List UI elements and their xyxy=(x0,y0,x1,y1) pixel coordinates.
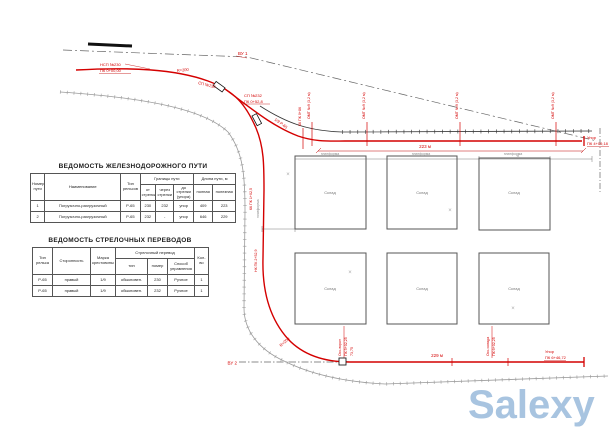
track-register-title: ВЕДОМОСТЬ ЖЕЛЕЗНОДОРОЖНОГО ПУТИ xyxy=(30,163,236,170)
branch-track-path xyxy=(225,89,582,141)
omt-marker-label: ОМТ №9 (3,2 м) xyxy=(455,92,459,119)
warehouse-label: Склад xyxy=(508,190,520,195)
switch-230-label: СП №230 xyxy=(198,80,217,89)
curve-kk0-label: КК ПК 0+86 xyxy=(298,107,302,126)
table-row: Р-65 правый 1/9 обыкновен. 232 Ручное 1 xyxy=(33,286,209,297)
cross-mark: × xyxy=(448,208,452,214)
omt-marker-label: ОМТ №9 (3,2 м) xyxy=(362,92,366,119)
warehouse-label: Склад xyxy=(324,286,336,291)
cross-mark: × xyxy=(516,154,520,160)
col-bounds: Границы пути xyxy=(140,174,193,185)
gate-symbol xyxy=(339,358,346,365)
buffer-top-label-line2: ПК 4+09,18 xyxy=(587,141,609,146)
gate2-label-line1: Ось склада xyxy=(486,337,490,356)
track-register: ВЕДОМОСТЬ ЖЕЛЕЗНОДОРОЖНОГО ПУТИ Номер пу… xyxy=(30,163,236,223)
cell-num: 1 xyxy=(31,201,45,212)
warehouse-label: Склад xyxy=(416,286,428,291)
warehouse-label: Склад xyxy=(508,286,520,291)
curve-radius-top: R=200 xyxy=(177,67,190,73)
pk-ticks xyxy=(303,122,584,367)
start-label-line2: ПК 0+00,00 xyxy=(100,68,122,73)
cell-rail: Р-65 xyxy=(33,286,53,297)
omt-marker-label: ОМТ №9 (3,2 м) xyxy=(307,92,311,119)
col-qty: Кол-во xyxy=(195,248,209,275)
buffer-bottom-label-line1: Упор xyxy=(545,349,555,354)
col-turnout-type: тип xyxy=(116,259,148,275)
omt-marker-label: ОМТ №9 (3,2 м) xyxy=(551,92,555,119)
cell-num: 2 xyxy=(31,212,45,223)
col-frog-mark: Марка крестовины xyxy=(91,248,116,275)
cell-from: 230 xyxy=(140,201,155,212)
platform-label: платформа xyxy=(321,152,340,156)
cell-type: обыкновен. xyxy=(116,286,148,297)
switch-register: ВЕДОМОСТЬ СТРЕЛОЧНЫХ ПЕРЕВОДОВ Тип рельс… xyxy=(32,237,208,297)
cross-mark: × xyxy=(511,306,515,312)
cell-rail: Р-65 xyxy=(33,275,53,286)
gate1-label-line3: 73,75 xyxy=(350,347,354,356)
cell-full: 646 xyxy=(193,212,212,223)
col-track-number: Номер пути xyxy=(31,174,45,201)
survey-crosses: × × × × × × xyxy=(249,154,520,338)
gate1-label-line2: ПК 5+02,25 xyxy=(344,337,348,356)
cell-name: Погрузочно-разгрузочный xyxy=(45,201,121,212)
curve-kk1-label: КК ПК 1+02,5 xyxy=(249,188,253,210)
gray-labels: платформа платформа платформа платформа xyxy=(256,152,522,218)
cell-qty: 1 xyxy=(195,275,209,286)
cell-control: Ручное xyxy=(168,275,195,286)
col-turnout: Стрелочный перевод xyxy=(116,248,195,259)
vu2-label: ВУ 2 xyxy=(228,361,238,366)
cell-name: Погрузочно-разгрузочный xyxy=(45,212,121,223)
col-useful-length: полезная xyxy=(213,185,236,201)
cell-through: 232 xyxy=(156,201,174,212)
col-from-switch: от стрелки xyxy=(140,185,155,201)
cell-rail: Р-65 xyxy=(121,212,140,223)
switch-232-label-line2: ПК 0+52,8 xyxy=(244,99,263,104)
cell-rail: Р-65 xyxy=(121,201,140,212)
salexy-watermark: Salexy xyxy=(468,383,595,428)
col-rail-type: Тип рельса xyxy=(33,248,53,275)
cell-side: правый xyxy=(53,275,91,286)
dim-slash xyxy=(581,148,586,153)
col-through-switch: через стрелки xyxy=(156,185,174,201)
ramp-label: платформа xyxy=(256,199,260,218)
leader-start-label xyxy=(125,64,150,69)
switch-232-label-line1: СП №232 xyxy=(244,93,263,98)
start-label-line1: НСП №230 xyxy=(100,62,122,67)
col-control: Способ управления xyxy=(168,259,195,275)
cell-number: 232 xyxy=(148,286,168,297)
cell-side: правый xyxy=(53,286,91,297)
platform-label: платформа xyxy=(412,152,431,156)
table-row: 1 Погрузочно-разгрузочный Р-65 230 232 у… xyxy=(31,201,236,212)
cross-mark: × xyxy=(348,270,352,276)
warehouse-label: Склад xyxy=(324,190,336,195)
building-labels: Склад Склад Склад Склад Склад Склад xyxy=(324,190,520,291)
cell-to: упор xyxy=(174,212,194,223)
gate1-label-line1: Ось ворот xyxy=(338,339,342,356)
existing-track-symbol xyxy=(88,44,132,46)
gate-lines xyxy=(344,326,492,358)
col-to-stop: до стрелки (упора) xyxy=(174,185,194,201)
switch-register-title: ВЕДОМОСТЬ СТРЕЛОЧНЫХ ПЕРЕВОДОВ xyxy=(32,237,208,244)
dim-top-value: 223 м xyxy=(419,144,431,149)
cell-to: упор xyxy=(174,201,194,212)
vu1-label: ВУ 1 xyxy=(238,51,248,56)
cell-qty: 1 xyxy=(195,286,209,297)
curve-radius-bottom: R=200 xyxy=(278,336,291,348)
curve-nk2-label: НК ПК 2+52,9 xyxy=(254,250,258,272)
cell-control: Ручное xyxy=(168,286,195,297)
buffer-top-label-line1: Упор xyxy=(587,135,597,140)
buffer-bottom-label-line2: ПК 6+46,72 xyxy=(545,355,567,360)
cell-mark: 1/9 xyxy=(91,275,116,286)
cell-number: 230 xyxy=(148,275,168,286)
col-turnout-number: номер xyxy=(148,259,168,275)
cross-mark: × xyxy=(286,172,290,178)
track-register-table: Номер пути Наименование Тип рельсов Гран… xyxy=(30,173,236,223)
dimension-red xyxy=(316,148,586,153)
cross-mark: × xyxy=(249,332,253,338)
col-full-length: полная xyxy=(193,185,212,201)
cell-useful: 223 xyxy=(213,201,236,212)
col-rail-type: Тип рельсов xyxy=(121,174,140,201)
table-row: 2 Погрузочно-разгрузочный Р-65 232 - упо… xyxy=(31,212,236,223)
col-length: Длина пути, м xyxy=(193,174,235,185)
cell-full: 409 xyxy=(193,201,212,212)
col-name: Наименование xyxy=(45,174,121,201)
drawing-canvas: Склад Склад Склад Склад Склад Склад НСП … xyxy=(0,0,610,431)
site-boundary-line xyxy=(63,50,597,141)
cell-useful: 229 xyxy=(213,212,236,223)
cell-from: 232 xyxy=(140,212,155,223)
buildings xyxy=(295,156,550,324)
dim-bottom-value: 229 м xyxy=(431,353,443,358)
cell-type: обыкновен. xyxy=(116,275,148,286)
cell-through: - xyxy=(156,212,174,223)
col-side: Сторонность xyxy=(53,248,91,275)
warehouse-label: Склад xyxy=(416,190,428,195)
cell-mark: 1/9 xyxy=(91,286,116,297)
table-row: Р-65 правый 1/9 обыкновен. 230 Ручное 1 xyxy=(33,275,209,286)
gate2-label-line2: ПК 6+02,25 xyxy=(492,337,496,356)
switch-register-table: Тип рельса Сторонность Марка крестовины … xyxy=(32,247,209,297)
